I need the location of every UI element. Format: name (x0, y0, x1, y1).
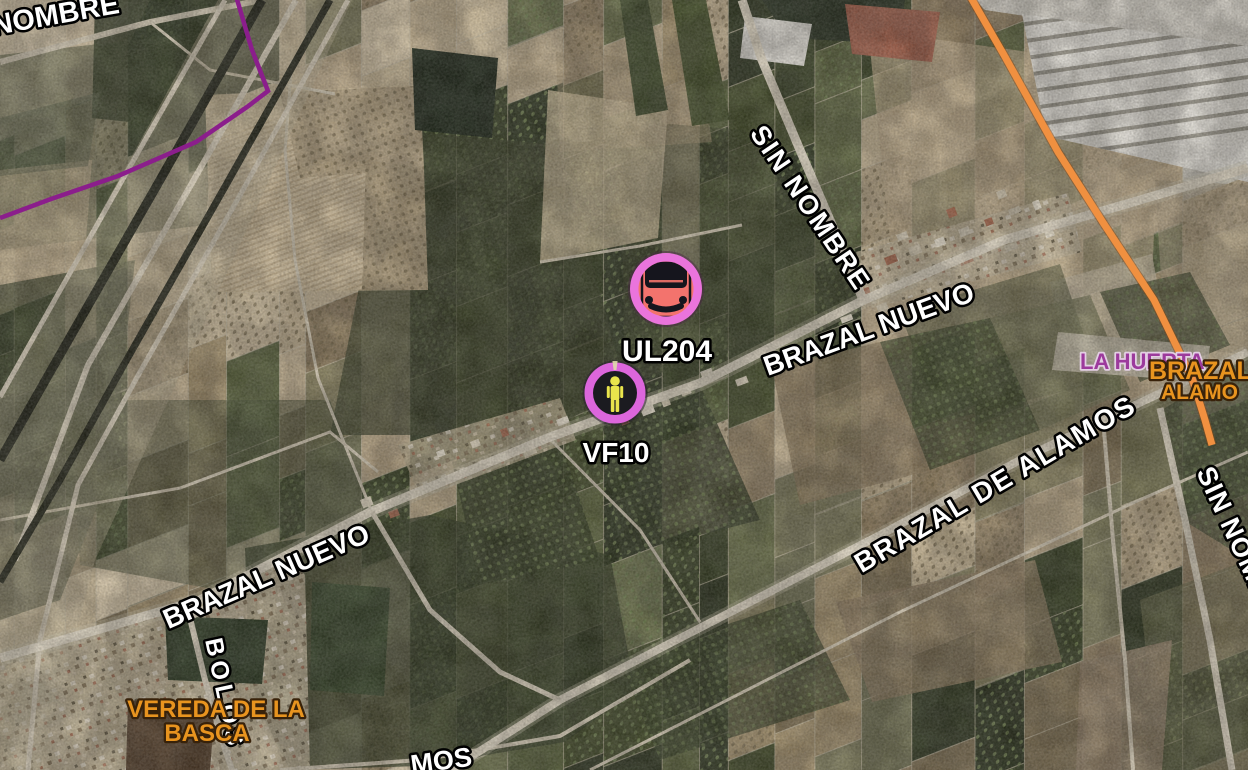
svg-text:ALAMO: ALAMO (1161, 381, 1238, 404)
svg-text:VF10: VF10 (583, 437, 650, 468)
svg-text:BASCA: BASCA (164, 720, 249, 747)
svg-text:VEREDA DE LA: VEREDA DE LA (127, 696, 305, 723)
svg-text:UL204: UL204 (622, 335, 712, 368)
